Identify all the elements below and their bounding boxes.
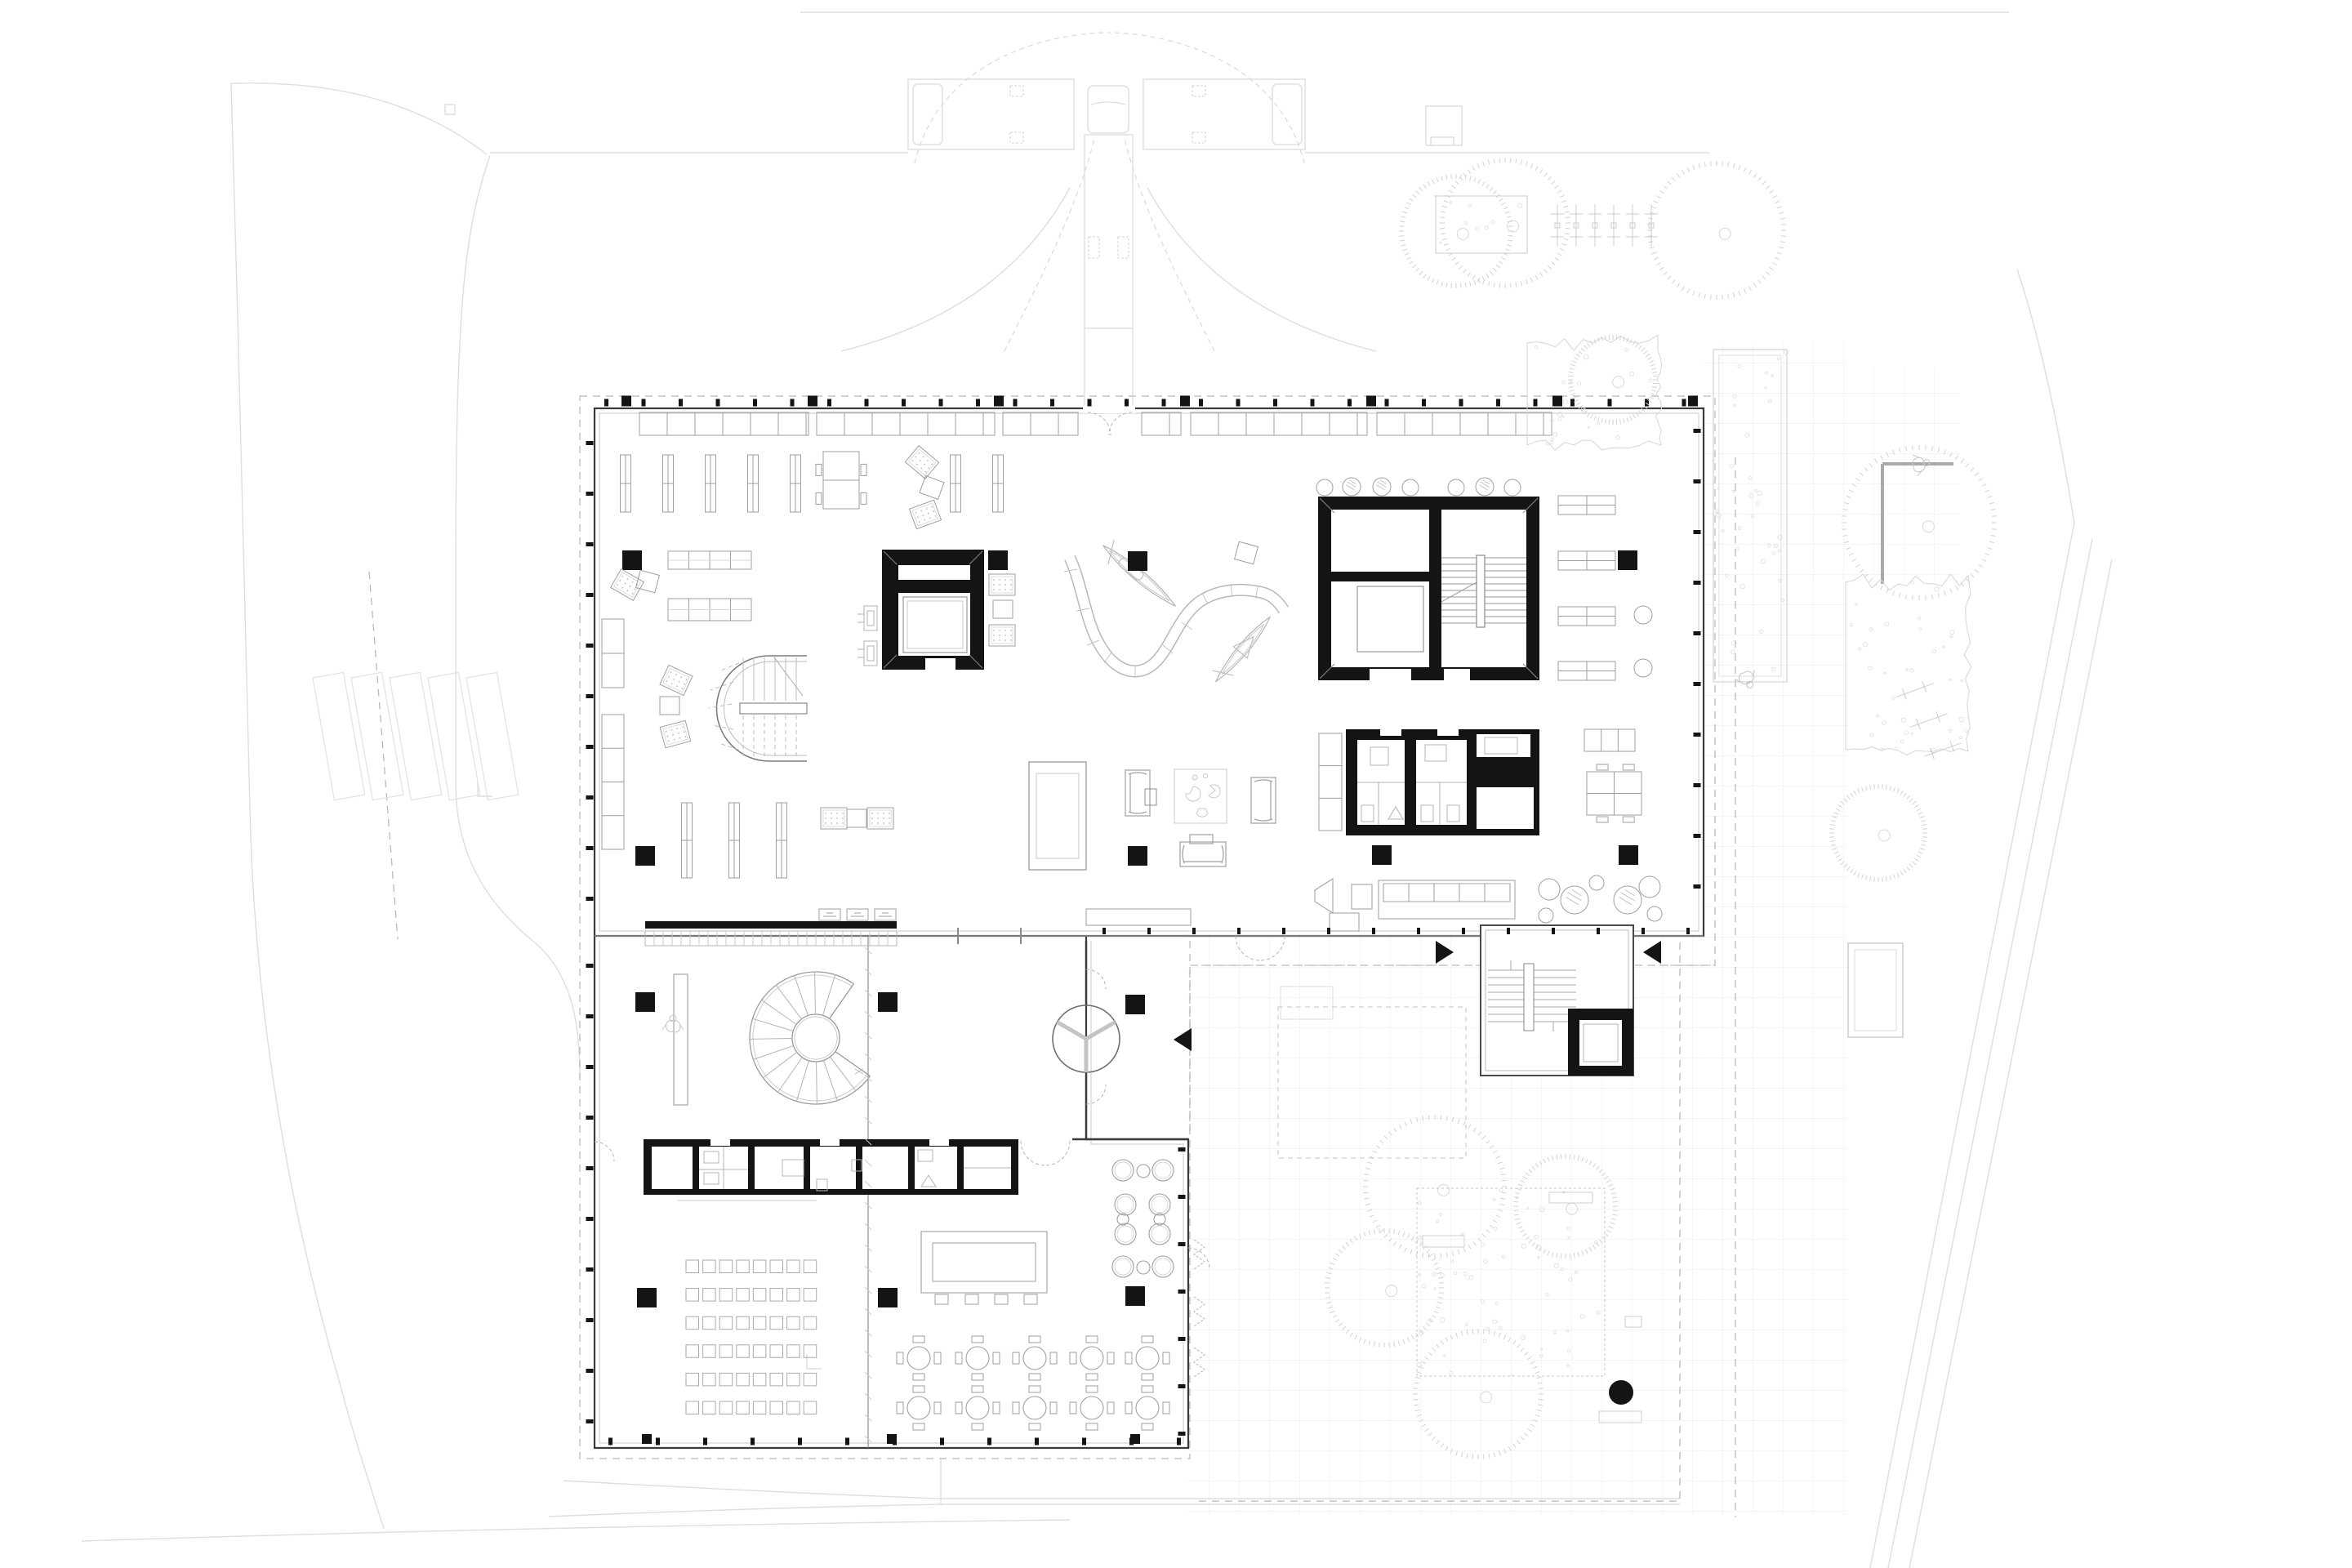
bench-wall — [674, 974, 688, 1105]
bed-speckle — [1918, 617, 1921, 620]
tree-tick — [1920, 848, 1925, 849]
wall-pilaster — [939, 399, 943, 407]
pouf-dot — [999, 639, 1000, 641]
pouf-dot — [836, 813, 838, 814]
tree-tick — [1493, 268, 1496, 271]
wall-pilaster — [642, 399, 646, 407]
shelf-band — [639, 412, 808, 435]
side-table-outline — [920, 476, 944, 500]
tree-tick — [1507, 216, 1512, 218]
pouf-dot — [993, 635, 995, 636]
bed-speckle — [1965, 730, 1968, 733]
pouf-dot — [831, 817, 832, 819]
restroom-block-east — [1346, 729, 1539, 835]
tree-tick — [1561, 1154, 1561, 1159]
seminar-chair — [787, 1401, 800, 1414]
wc-cell — [652, 1147, 693, 1189]
tree-tick — [1913, 595, 1913, 600]
truck-wheels — [1010, 132, 1023, 143]
bike-bar — [1930, 748, 1934, 759]
tree-tick — [1914, 805, 1918, 808]
chair — [955, 1402, 962, 1414]
tree-tick — [1432, 180, 1434, 184]
tree-tick — [1552, 181, 1556, 185]
tree-tick — [1482, 181, 1485, 185]
wc-cell — [915, 1147, 957, 1189]
tree-tick — [1493, 191, 1496, 194]
pouf-dot — [931, 463, 933, 465]
pouf-dot — [626, 578, 628, 580]
tree-tick — [1423, 274, 1426, 278]
pouf-dot — [626, 590, 628, 591]
pouf-dot — [993, 639, 995, 641]
bed-speckle — [1486, 226, 1489, 229]
tree-tick — [1733, 292, 1735, 297]
seminar-chair — [703, 1373, 716, 1386]
pouf-diamond — [821, 808, 847, 829]
round-table — [966, 1396, 989, 1419]
wall-pilaster — [1496, 399, 1500, 407]
round-table — [1080, 1347, 1103, 1370]
tree-tick — [1442, 206, 1447, 207]
spiral-tread — [762, 1000, 797, 1025]
planting-bed — [1527, 335, 1662, 450]
seminar-chair — [719, 1345, 733, 1358]
pouf-diamond — [910, 500, 942, 528]
wall-pilaster — [791, 399, 795, 407]
seminar-chair — [703, 1260, 716, 1273]
tree-tick — [1664, 272, 1668, 275]
tree-tick — [1574, 400, 1578, 403]
round-table — [966, 1347, 989, 1370]
wall-pilaster — [586, 897, 594, 901]
tree-tick — [1913, 445, 1913, 450]
tree-tick — [1775, 201, 1780, 203]
wall-pilaster — [1694, 733, 1701, 737]
wall-pilaster — [586, 1166, 594, 1170]
stool-round — [1448, 479, 1464, 496]
tree-tick — [1966, 463, 1969, 467]
bed-speckle — [1859, 648, 1861, 650]
tree-tick — [1539, 1388, 1543, 1389]
tree-tick — [1530, 278, 1533, 282]
bed-speckle — [1850, 623, 1853, 626]
bicycle — [1645, 204, 1658, 247]
planter-pool-inner — [1036, 773, 1079, 858]
seminar-chair — [770, 1373, 783, 1386]
pouf-dot — [666, 680, 667, 682]
tree-tick — [1842, 529, 1846, 530]
tree-tick — [1451, 283, 1452, 288]
canoe — [1096, 537, 1183, 615]
tree-tick — [1651, 390, 1656, 392]
bicycle — [1895, 678, 1935, 702]
bed-speckle — [1935, 587, 1940, 592]
tree-tick — [1641, 348, 1645, 351]
tree-tick — [1762, 181, 1766, 185]
tree-tick — [1605, 419, 1606, 424]
tree-tick — [1539, 1399, 1543, 1400]
tree-tick — [1893, 875, 1895, 880]
pouf-dot — [674, 738, 675, 740]
tree-tick — [1441, 1115, 1441, 1120]
pouf-inner — [991, 627, 1013, 644]
pouf-dot — [681, 688, 683, 689]
tree-canopy — [1647, 161, 1786, 300]
seminar-chair — [753, 1260, 766, 1273]
tree-tick — [1490, 187, 1493, 191]
stair-landing-rail — [740, 703, 807, 714]
tree-tick — [1570, 364, 1575, 366]
tree-tick — [1651, 207, 1656, 208]
seminar-chair — [787, 1345, 800, 1358]
tree-tick — [1921, 844, 1926, 846]
tree-tick — [1472, 1454, 1473, 1459]
tree-tick — [1576, 354, 1580, 356]
chair — [861, 492, 866, 504]
tree-tick — [1400, 240, 1405, 241]
pouf-dot — [624, 582, 626, 584]
pouf-dot — [919, 460, 921, 462]
tree-tick — [1461, 283, 1462, 288]
stool-round — [1539, 908, 1553, 923]
tree-tick — [1563, 206, 1568, 207]
pouf-dot — [617, 584, 618, 586]
tree-tick — [1650, 394, 1655, 395]
bar-table — [1115, 1194, 1136, 1215]
tree-tick — [1893, 591, 1895, 596]
tree-tick — [1682, 170, 1685, 174]
pouf-diamond — [989, 625, 1015, 646]
tree-tick — [1926, 445, 1927, 450]
bar-table-inner — [1155, 1258, 1171, 1275]
wall-pilaster — [1082, 1438, 1086, 1445]
wall-pilaster — [1694, 530, 1701, 534]
pouf-dot — [915, 456, 917, 458]
tree-tick — [1900, 871, 1903, 875]
round-table — [1023, 1347, 1046, 1370]
floor-plan-drawing — [0, 0, 2352, 1568]
tree-tick — [1560, 195, 1564, 198]
tree-tick — [1389, 1343, 1390, 1347]
pouf-dot — [931, 506, 933, 507]
core-b-room1 — [1331, 510, 1429, 572]
round-table — [1023, 1396, 1046, 1419]
cash-register — [819, 909, 840, 920]
wall-pilaster — [1236, 399, 1241, 407]
wall-pilaster — [1178, 1195, 1186, 1199]
tree-tick — [1501, 257, 1505, 260]
tree-tick — [1624, 418, 1625, 423]
pouf-dot — [842, 822, 844, 824]
spiral-edge — [835, 1052, 871, 1076]
bar-table-inner — [1117, 1196, 1134, 1213]
tree-tick — [1449, 190, 1453, 193]
truck-trailer-east — [1143, 79, 1305, 149]
tree-tick — [1636, 343, 1638, 347]
column — [1125, 1286, 1145, 1306]
site-boundary-nw — [231, 83, 487, 154]
tree-tick — [1644, 351, 1648, 354]
stool-round — [1634, 659, 1652, 677]
chair — [1125, 1402, 1132, 1414]
pouf-dot — [825, 822, 826, 824]
spiral-newel — [792, 1014, 840, 1062]
stool-round — [1589, 875, 1604, 890]
truck-cab-center — [1088, 86, 1129, 133]
pouf-diamond — [660, 665, 693, 695]
tree-tick — [1912, 801, 1916, 804]
tree-tick — [1753, 283, 1756, 287]
wall-pilaster — [1385, 399, 1389, 407]
shelf-band — [1142, 412, 1181, 435]
seminar-chair — [787, 1260, 800, 1273]
tree-tick — [1555, 185, 1559, 188]
pouf-dot — [933, 510, 934, 512]
wall-pilaster — [586, 1065, 594, 1069]
tree-tick — [1405, 253, 1409, 256]
column — [1128, 846, 1147, 866]
bed-speckle — [1910, 669, 1913, 672]
tree-tick — [1961, 459, 1963, 463]
utility-hut-step — [1431, 137, 1454, 145]
core-b-room2 — [1331, 581, 1429, 667]
street-curve — [841, 188, 1070, 351]
pouf-dot — [678, 733, 679, 734]
tree-tick — [1904, 793, 1906, 797]
pouf-dot — [924, 470, 927, 473]
planter-southeast — [1848, 943, 1903, 1037]
tree-tick — [1413, 1388, 1418, 1389]
tree-tick — [1416, 268, 1419, 271]
corner-marks — [478, 782, 822, 1369]
truck-cab-east — [1272, 84, 1302, 145]
wall-pilaster — [586, 1267, 594, 1272]
pouf-dot — [883, 817, 884, 819]
tree-tick — [1920, 816, 1925, 817]
wall-pilaster — [1273, 399, 1277, 407]
tree-tick — [1455, 262, 1459, 265]
side-table-outline — [847, 809, 866, 827]
kitchen-counter — [1315, 879, 1515, 931]
tree-tick — [1677, 173, 1679, 177]
bed-speckle — [1942, 646, 1944, 648]
bed-speckle — [1588, 427, 1589, 429]
column — [878, 992, 898, 1012]
wall-pilaster — [1694, 834, 1701, 838]
seminar-chair — [787, 1316, 800, 1330]
tree-tick — [1991, 510, 1996, 510]
bed-speckle — [1557, 412, 1562, 416]
tree-tick — [1416, 191, 1419, 194]
chair — [1142, 1386, 1153, 1392]
tree-tick — [1656, 263, 1660, 265]
tree-tick — [1325, 1283, 1330, 1284]
bar-table-inner — [1155, 1162, 1171, 1178]
pouf-dot — [836, 817, 838, 819]
tree-tick — [1865, 786, 1867, 791]
tree-tick — [1971, 574, 1974, 577]
seminar-chair — [770, 1345, 783, 1358]
chair — [1029, 1374, 1040, 1380]
tree-tick — [1474, 280, 1476, 285]
shelf-band — [817, 412, 995, 435]
tree-tick — [1982, 559, 1986, 562]
tree-tick — [1870, 785, 1871, 790]
tree-tick — [1508, 236, 1513, 237]
pouf-hatch — [1479, 480, 1489, 490]
tree-tick — [1465, 283, 1466, 287]
wall-pilaster — [940, 1438, 944, 1445]
pouf-diamond — [611, 569, 644, 601]
pouf-dot — [1010, 589, 1012, 590]
tree-tick — [1483, 162, 1485, 167]
wall-pilaster — [586, 1116, 594, 1120]
wall-pilaster — [753, 399, 757, 407]
drinking-fountains — [857, 606, 877, 666]
bike-bar — [1922, 681, 1927, 692]
spiral-tread — [796, 1061, 808, 1102]
tree-trunk-solid — [1609, 1380, 1633, 1405]
pouf-dot — [889, 817, 890, 819]
column — [635, 846, 655, 866]
tree-tick — [1570, 368, 1575, 370]
tree-tick — [1739, 165, 1740, 170]
bed-speckle — [1868, 666, 1871, 670]
tree-tick — [1616, 420, 1617, 425]
bed-speckle — [1895, 747, 1898, 751]
pouf-diamond — [989, 574, 1015, 595]
wall-pilaster — [586, 542, 594, 546]
tree-tick — [1620, 419, 1621, 424]
tree-tick — [1587, 343, 1589, 347]
spiral-newel-inner — [795, 1017, 837, 1059]
tree-tick — [1463, 269, 1467, 274]
stair-treads-upper — [743, 657, 796, 701]
tree-tick — [1907, 795, 1910, 800]
wc-door-gap — [1380, 729, 1401, 736]
column — [1618, 550, 1637, 570]
bed-speckle — [1904, 731, 1909, 735]
chair — [1142, 1336, 1153, 1343]
tree-tick — [1770, 190, 1774, 193]
pouf-dot — [631, 592, 633, 594]
chair — [913, 1386, 924, 1392]
tree-tick — [1886, 876, 1886, 881]
tree-tick — [1402, 249, 1407, 251]
wall-pilaster-large — [1180, 396, 1190, 407]
tree-tick — [1432, 278, 1434, 283]
tree-tick — [1613, 1210, 1618, 1211]
tree-tick — [1508, 226, 1513, 227]
tree-tick — [1728, 162, 1729, 167]
tree-trunk — [1719, 228, 1731, 239]
seminar-chair — [770, 1401, 783, 1414]
spiral-tread — [823, 1060, 837, 1100]
tree-tick — [1870, 876, 1871, 881]
bed-speckle — [1597, 423, 1600, 425]
tree-tick — [1728, 294, 1729, 299]
bed-speckle — [1527, 404, 1529, 406]
wc-door-gap — [710, 1139, 730, 1146]
tree-tick — [1650, 247, 1655, 248]
wall-pilaster — [1682, 399, 1686, 407]
tree-tick — [1437, 280, 1438, 285]
pouf-dot — [634, 588, 635, 590]
bar-table-inner — [1151, 1226, 1168, 1242]
wall-pilaster — [1162, 399, 1166, 407]
tree-tick — [1601, 418, 1603, 423]
core-a-door-gap — [925, 658, 955, 670]
seminar-chair — [770, 1260, 783, 1273]
site-boundary-south — [82, 1520, 1070, 1541]
tree-tick — [1441, 282, 1443, 287]
tree-tick — [1516, 283, 1517, 287]
tree-tick — [1499, 198, 1503, 201]
chair — [1623, 817, 1634, 822]
tree-tick — [1499, 158, 1500, 163]
bed-speckle — [1625, 348, 1628, 351]
tree-tick — [1749, 170, 1752, 174]
wall-pilaster — [1178, 1384, 1186, 1388]
chair — [816, 492, 822, 504]
pouf-dot — [676, 728, 678, 729]
wall-pilaster-large — [1130, 1434, 1140, 1444]
tree-tick — [1900, 791, 1903, 795]
truck-wheels — [1118, 237, 1129, 258]
tree-tick — [1474, 177, 1476, 182]
bed-speckle — [1577, 382, 1580, 385]
tree-tick — [1779, 212, 1784, 214]
tree-tick — [1499, 283, 1500, 288]
bar-table — [1149, 1223, 1170, 1245]
chair — [1107, 1402, 1114, 1414]
tree-tick — [1704, 294, 1705, 299]
seminar-chair — [804, 1373, 817, 1386]
tree-tick — [1854, 871, 1856, 875]
wall-pilaster — [586, 593, 594, 597]
seminar-chair — [703, 1289, 716, 1302]
seminar-chair — [804, 1401, 817, 1414]
bar-table — [1137, 1165, 1150, 1178]
bicycle — [1909, 708, 1949, 733]
wc-cell — [755, 1147, 804, 1189]
wall-pilaster — [1694, 884, 1701, 889]
wall-pilaster — [1088, 399, 1092, 407]
wall-pilaster-large — [887, 1434, 897, 1444]
round-table — [907, 1347, 930, 1370]
chair — [934, 1402, 941, 1414]
tree-tick — [1656, 196, 1660, 198]
truck-wheels — [1010, 86, 1023, 96]
tree-tick — [1988, 547, 1993, 549]
tree-tick — [1649, 397, 1653, 399]
seminar-chair — [770, 1316, 783, 1330]
tree-tick — [1468, 273, 1470, 277]
pouf-dot — [684, 736, 686, 737]
tree-tick — [1829, 829, 1834, 830]
wall-pilaster-large — [621, 396, 631, 407]
pouf-dot — [883, 822, 884, 824]
pouf-dot — [673, 679, 675, 680]
tree-tick — [1651, 368, 1656, 370]
truck-wheels — [1192, 132, 1205, 143]
wall-pilaster — [586, 1217, 594, 1221]
seminar-chair — [787, 1289, 800, 1302]
seminar-chair — [703, 1345, 716, 1358]
bicycle — [1588, 204, 1601, 247]
pouf-dot — [999, 630, 1000, 631]
